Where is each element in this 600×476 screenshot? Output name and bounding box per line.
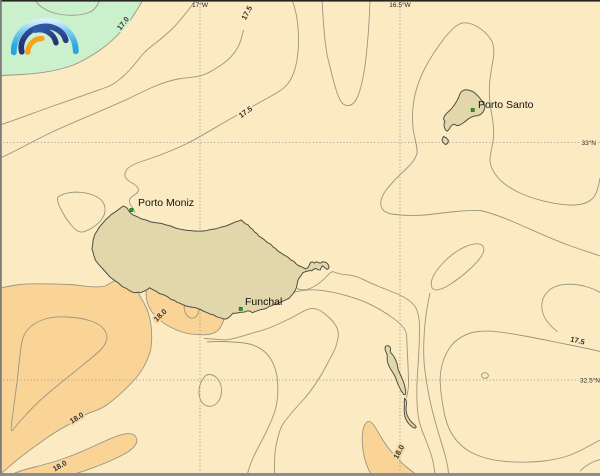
svg-text:32.5°N: 32.5°N <box>580 377 600 385</box>
svg-text:Porto Moniz: Porto Moniz <box>138 197 194 209</box>
svg-text:16.5°W: 16.5°W <box>389 1 411 9</box>
svg-text:33°N: 33°N <box>581 139 596 147</box>
svg-text:Porto Santo: Porto Santo <box>478 99 534 111</box>
svg-text:17°W: 17°W <box>192 1 209 9</box>
svg-text:Funchal: Funchal <box>245 296 282 308</box>
